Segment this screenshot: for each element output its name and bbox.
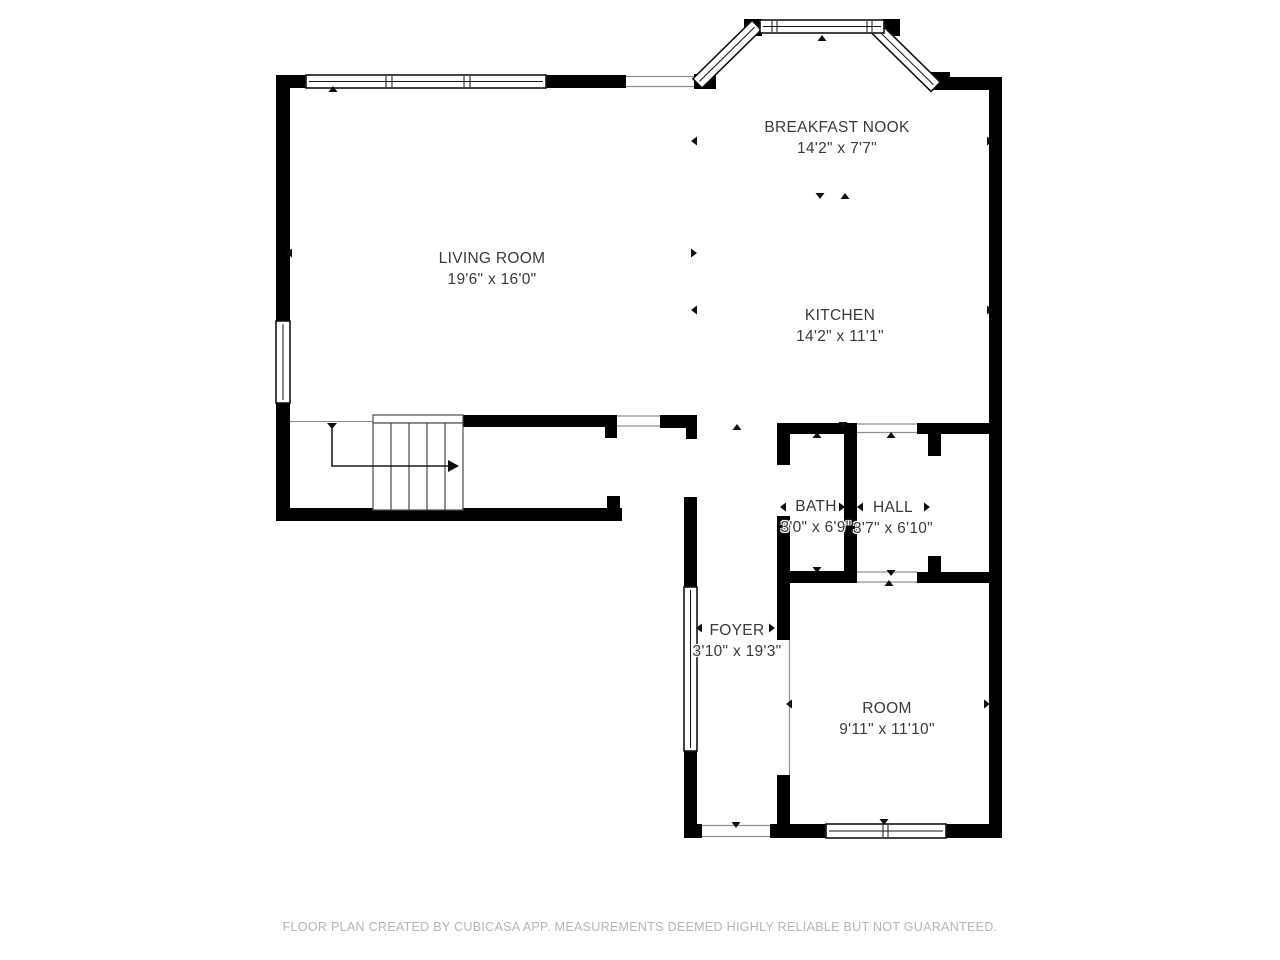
- floorplan-drawing: [0, 0, 1280, 960]
- measure-arrow: [816, 193, 825, 199]
- room-name: FOYER: [693, 620, 782, 641]
- room-name: ROOM: [839, 698, 935, 719]
- room-dims: 19'6" x 16'0": [439, 269, 546, 290]
- measure-arrow: [841, 193, 850, 199]
- room-dims: 9'11" x 11'10": [839, 719, 935, 740]
- label-bath: BATH 3'0" x 6'9": [780, 496, 851, 538]
- bay-window: [693, 20, 940, 91]
- measure-arrow: [887, 570, 896, 576]
- room-name: BREAKFAST NOOK: [764, 117, 909, 138]
- label-living-room: LIVING ROOM 19'6" x 16'0": [439, 248, 546, 290]
- measure-arrow: [885, 580, 894, 586]
- label-kitchen: KITCHEN 14'2" x 11'1": [796, 305, 884, 347]
- window-room-bottom: [826, 824, 946, 838]
- label-foyer: FOYER 3'10" x 19'3": [693, 620, 782, 662]
- window-living-top: [306, 75, 546, 88]
- footer-disclaimer: FLOOR PLAN CREATED BY CUBICASA APP. MEAS…: [283, 920, 998, 934]
- room-name: KITCHEN: [796, 305, 884, 326]
- label-room: ROOM 9'11" x 11'10": [839, 698, 935, 740]
- room-dims: 3'0" x 6'9": [780, 517, 851, 538]
- window-foyer-left: [684, 587, 697, 751]
- label-hall: HALL 3'7" x 6'10": [853, 497, 933, 539]
- room-dims: 14'2" x 11'1": [796, 326, 884, 347]
- room-name: HALL: [853, 497, 933, 518]
- measure-arrow: [691, 306, 697, 315]
- measure-arrow: [691, 137, 697, 146]
- room-dims: 3'10" x 19'3": [693, 641, 782, 662]
- floorplan-canvas: LIVING ROOM 19'6" x 16'0" BREAKFAST NOOK…: [0, 0, 1280, 960]
- room-name: LIVING ROOM: [439, 248, 546, 269]
- room-name: BATH: [780, 496, 851, 517]
- measure-arrow: [691, 249, 697, 258]
- label-breakfast-nook: BREAKFAST NOOK 14'2" x 7'7": [764, 117, 909, 159]
- room-dims: 3'7" x 6'10": [853, 518, 933, 539]
- window-living-left: [276, 321, 290, 403]
- measure-arrow: [818, 35, 827, 41]
- measure-arrow: [733, 424, 742, 430]
- room-dims: 14'2" x 7'7": [764, 138, 909, 159]
